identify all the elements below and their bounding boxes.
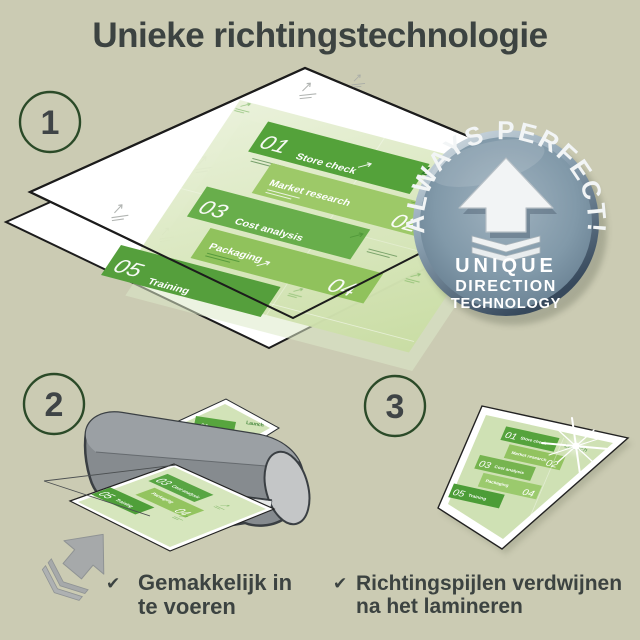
step-2-marker: 2 bbox=[24, 374, 84, 434]
badge-line3: TECHNOLOGY bbox=[451, 296, 561, 312]
step-2-number: 2 bbox=[45, 386, 64, 424]
direction-watermark-icon bbox=[350, 72, 365, 88]
checklist-line: te voeren bbox=[138, 594, 236, 619]
step-3-artwork: 01 Store check Market research 02 03 Cos… bbox=[438, 406, 632, 554]
badge-line1: UNIQUE bbox=[455, 255, 557, 277]
check-icon: ✔ bbox=[106, 574, 120, 593]
step-3-marker: 3 bbox=[365, 376, 425, 436]
step-1-number: 1 bbox=[41, 104, 60, 142]
feed-arrow-up-icon bbox=[34, 518, 123, 610]
checklist-item-2: ✔ Richtingspijlen verdwijnen na het lami… bbox=[333, 572, 622, 618]
check-icon: ✔ bbox=[333, 574, 347, 593]
checklist-line: na het lamineren bbox=[356, 595, 523, 618]
illustration-canvas: ↗ Unieke richtingstechnologie 1 bbox=[0, 0, 640, 640]
illustration-stage: ↗ Unieke richtingstechnologie 1 bbox=[0, 0, 640, 640]
page-title: Unieke richtingstechnologie bbox=[92, 16, 547, 55]
badge-line2: DIRECTION bbox=[455, 278, 557, 295]
step-3-number: 3 bbox=[386, 388, 405, 426]
step-1-marker: 1 bbox=[20, 92, 80, 152]
checklist: ✔ Gemakkelijk in te voeren ✔ Richtingspi… bbox=[106, 570, 622, 619]
checklist-line: Gemakkelijk in bbox=[138, 570, 292, 595]
checklist-line: Richtingspijlen verdwijnen bbox=[356, 572, 622, 595]
checklist-item-1: ✔ Gemakkelijk in te voeren bbox=[106, 570, 292, 619]
